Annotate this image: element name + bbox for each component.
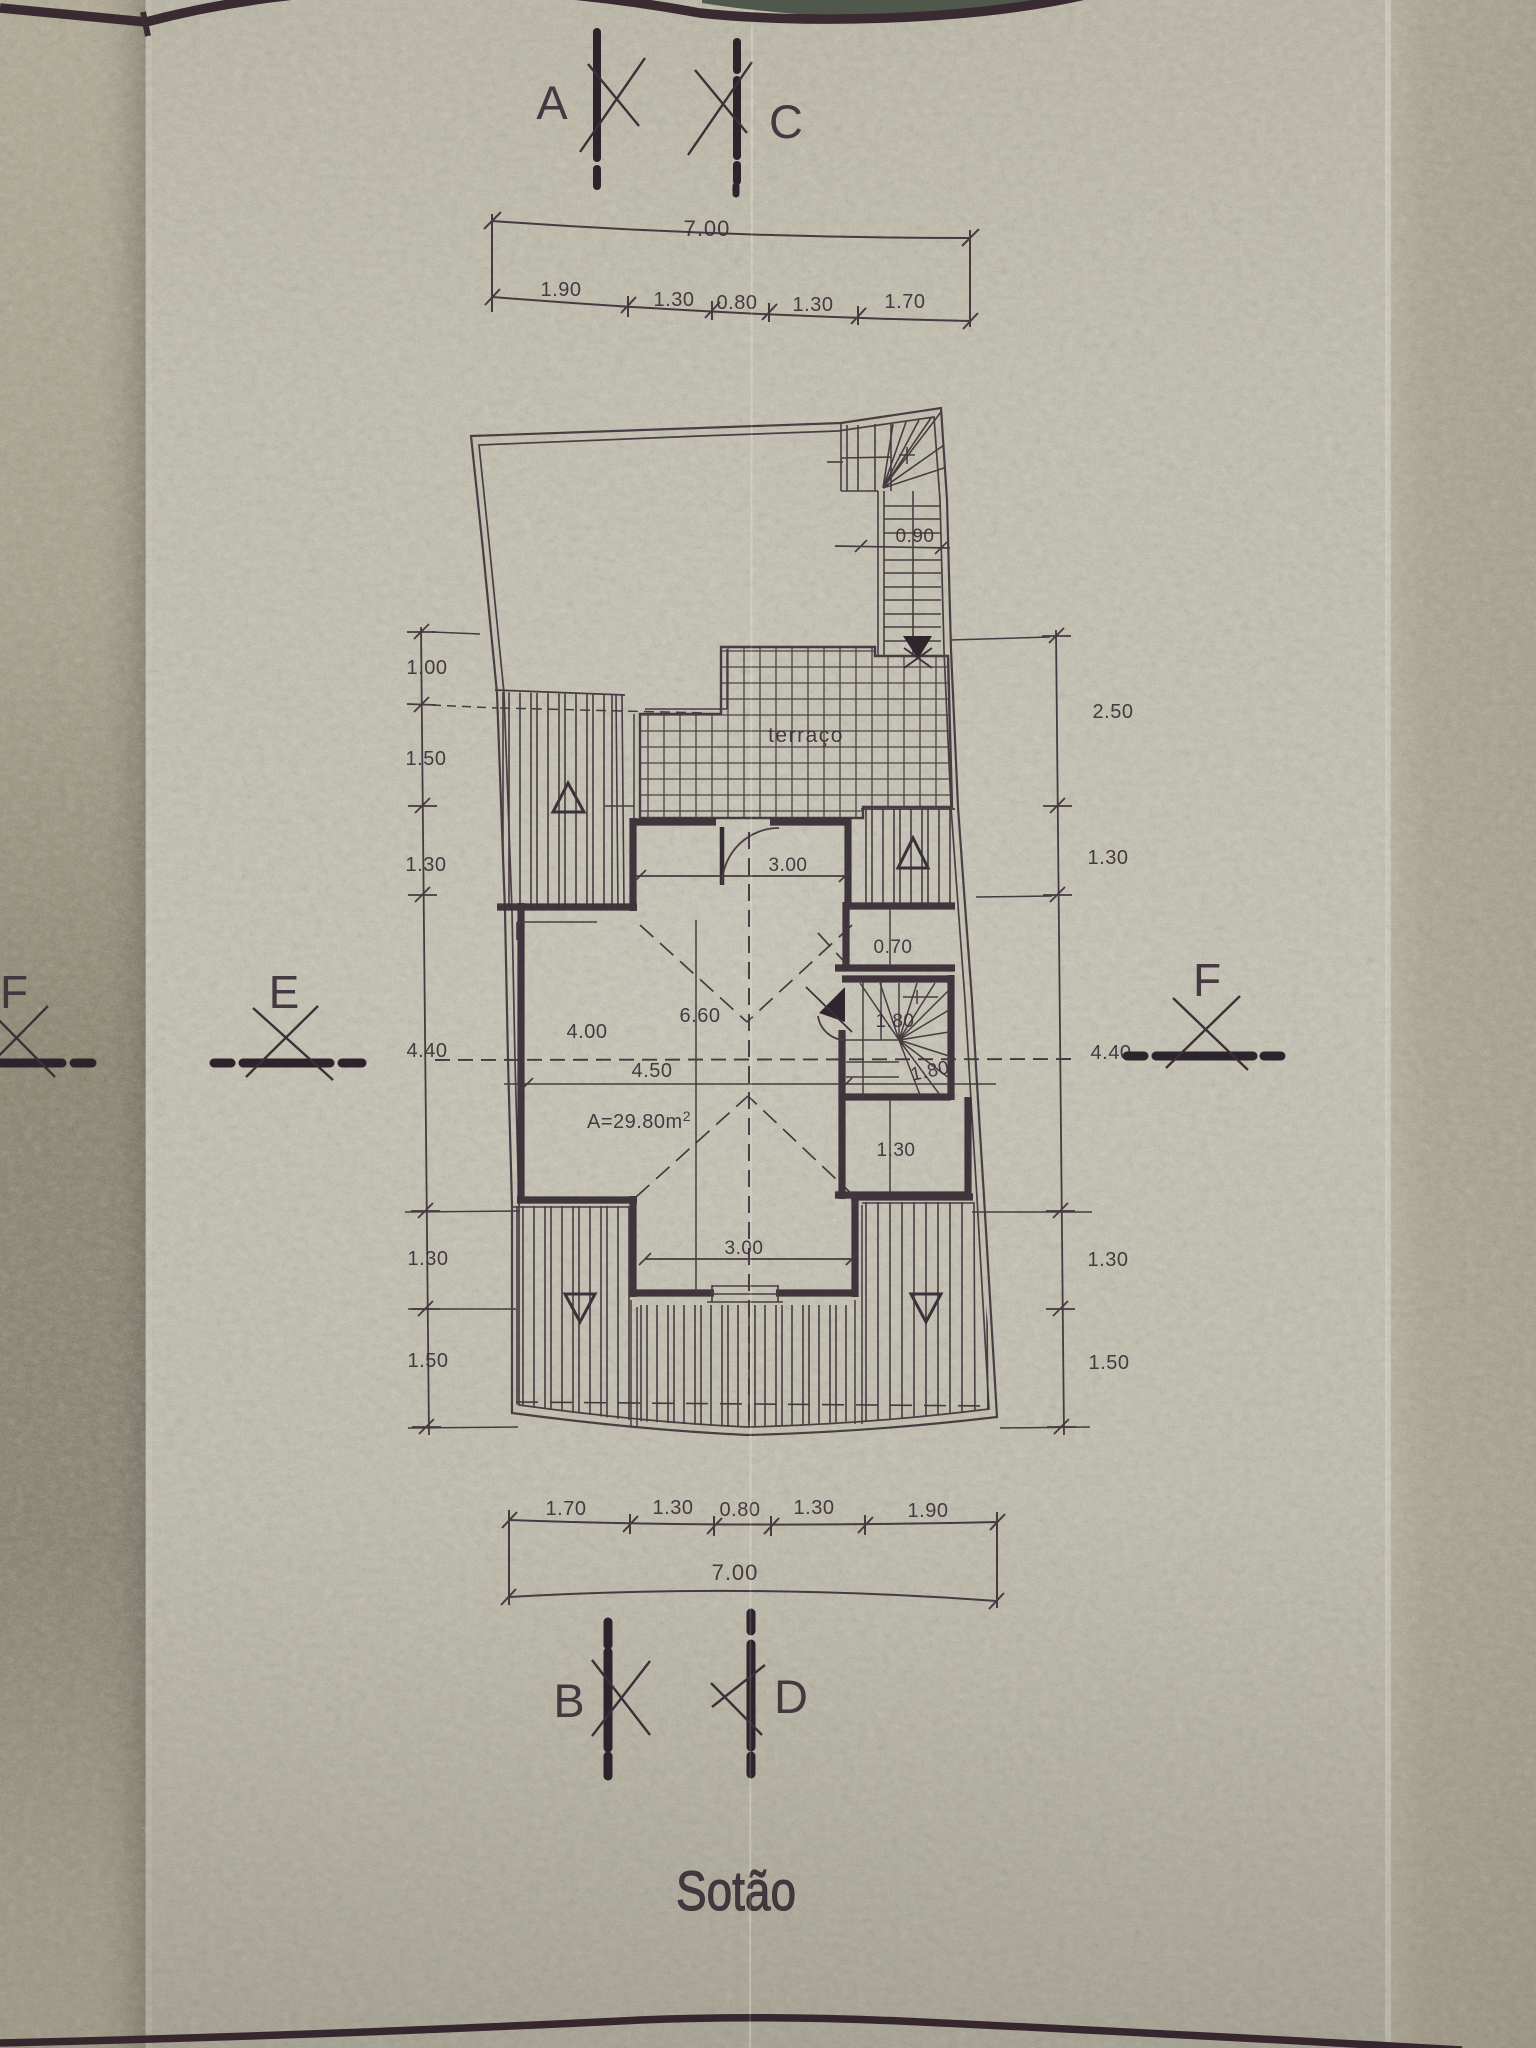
svg-text:0.90: 0.90 xyxy=(896,526,935,547)
svg-text:1.70: 1.70 xyxy=(546,1498,587,1520)
svg-text:1.30: 1.30 xyxy=(877,1140,916,1161)
svg-text:1.30: 1.30 xyxy=(793,294,834,316)
svg-text:1.30: 1.30 xyxy=(406,854,447,876)
svg-text:6.60: 6.60 xyxy=(680,1005,721,1027)
svg-text:terraço: terraço xyxy=(768,724,844,747)
svg-text:1.50: 1.50 xyxy=(1089,1352,1130,1374)
svg-text:F: F xyxy=(1193,954,1221,1006)
svg-text:1.30: 1.30 xyxy=(1088,847,1129,869)
svg-text:E: E xyxy=(269,966,300,1018)
svg-text:0.80: 0.80 xyxy=(720,1499,761,1521)
svg-text:1.50: 1.50 xyxy=(406,748,447,770)
svg-text:3.00: 3.00 xyxy=(725,1238,764,1259)
svg-text:3.00: 3.00 xyxy=(769,855,808,876)
svg-text:1.30: 1.30 xyxy=(794,1497,835,1519)
svg-text:1.90: 1.90 xyxy=(908,1500,949,1522)
svg-text:1.30: 1.30 xyxy=(653,1497,694,1519)
svg-text:1.00: 1.00 xyxy=(407,657,448,679)
svg-text:A: A xyxy=(536,76,568,129)
svg-text:1.30: 1.30 xyxy=(408,1248,449,1270)
svg-text:1.30: 1.30 xyxy=(654,289,695,311)
svg-text:0.70: 0.70 xyxy=(874,937,913,958)
svg-text:Sotão: Sotão xyxy=(676,1859,796,1922)
svg-text:1.70: 1.70 xyxy=(885,291,926,313)
svg-text:2.50: 2.50 xyxy=(1093,701,1134,723)
svg-text:1.90: 1.90 xyxy=(541,279,582,301)
svg-text:7.00: 7.00 xyxy=(712,1560,759,1585)
svg-text:4.00: 4.00 xyxy=(567,1021,608,1043)
svg-text:1.30: 1.30 xyxy=(1088,1249,1129,1271)
svg-text:D: D xyxy=(774,1670,808,1723)
svg-text:1.50: 1.50 xyxy=(408,1350,449,1372)
svg-text:7.00: 7.00 xyxy=(684,216,731,241)
svg-text:4.50: 4.50 xyxy=(632,1060,673,1082)
svg-text:C: C xyxy=(769,95,803,148)
svg-text:B: B xyxy=(553,1674,584,1727)
svg-text:A=29.80m2: A=29.80m2 xyxy=(587,1108,691,1133)
svg-text:1.80: 1.80 xyxy=(876,1011,915,1032)
svg-text:4.40: 4.40 xyxy=(407,1040,448,1062)
svg-text:F: F xyxy=(0,966,28,1018)
